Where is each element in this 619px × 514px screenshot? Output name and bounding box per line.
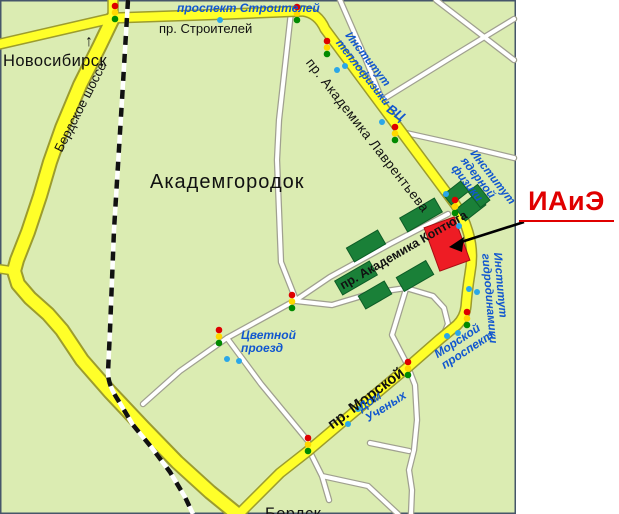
traffic-light	[216, 327, 223, 347]
traffic-light	[289, 292, 296, 312]
traffic-light	[305, 435, 312, 455]
traffic-light	[405, 359, 412, 379]
traffic-light	[294, 4, 301, 24]
iaie-callout-label: ИАиЭ	[519, 186, 614, 222]
traffic-light	[112, 3, 119, 23]
traffic-light	[452, 197, 459, 217]
map-page: Новосибирск ↑ проспект Строителей пр. Ст…	[0, 0, 619, 514]
traffic-light	[324, 38, 331, 58]
traffic-light	[464, 309, 471, 329]
akademgorodok-map	[0, 0, 619, 514]
traffic-light	[392, 124, 399, 144]
